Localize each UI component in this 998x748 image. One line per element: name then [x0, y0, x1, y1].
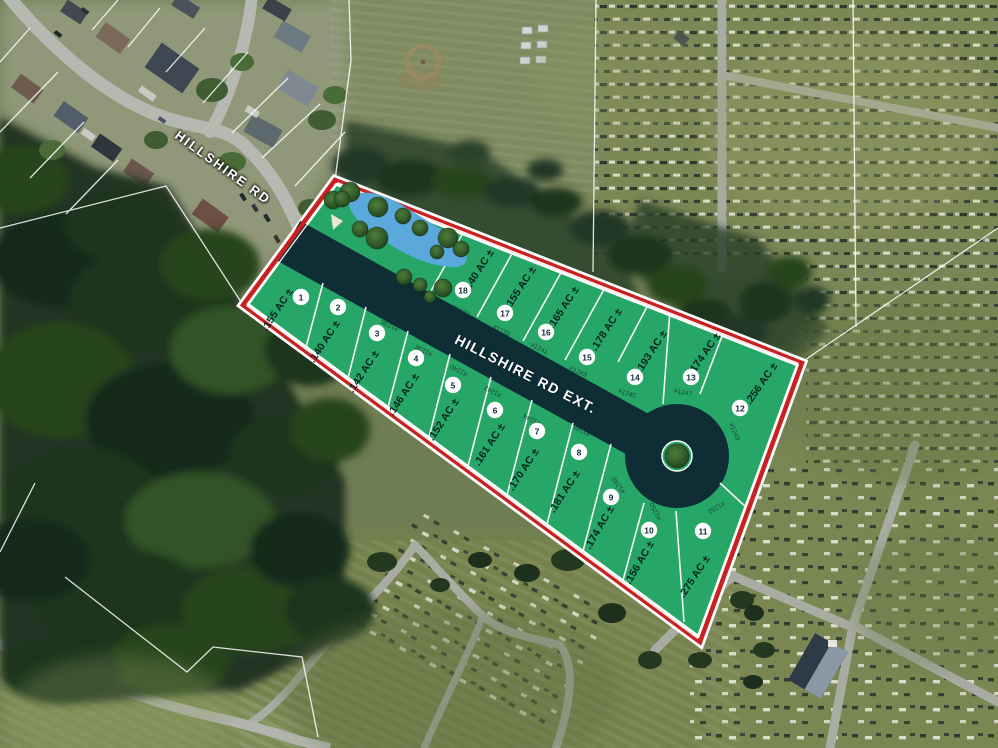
tree-icon — [665, 444, 689, 468]
lot-number: 12 — [735, 404, 745, 414]
lot-number: 10 — [644, 526, 654, 536]
tree-icon — [368, 197, 388, 217]
map-canvas: .155 AC ±#12321.140 AC ±#12342.142 AC ±#… — [0, 0, 998, 748]
tree-icon — [334, 191, 350, 207]
lot-number: 15 — [582, 353, 592, 363]
lot-number: 8 — [577, 448, 582, 458]
tree-icon — [413, 278, 427, 292]
tree-icon — [352, 221, 368, 237]
tree-icon — [453, 241, 469, 257]
tree-icon — [396, 269, 412, 285]
tree-icon — [434, 279, 452, 297]
dirt-ring-center — [421, 60, 426, 65]
lot-number: 13 — [686, 373, 696, 383]
lot-number: 4 — [414, 354, 419, 364]
aerial-plat-map: .155 AC ±#12321.140 AC ±#12342.142 AC ±#… — [0, 0, 998, 748]
lot-number: 9 — [609, 493, 614, 503]
lot-number: 16 — [541, 328, 551, 338]
lot-number: 18 — [458, 286, 468, 296]
lot-number: 7 — [535, 427, 540, 437]
tree-icon — [395, 208, 411, 224]
lot-number: 14 — [630, 373, 640, 383]
lot-number: 17 — [500, 309, 510, 319]
lot-number: 1 — [299, 293, 304, 303]
lot-number: 11 — [699, 527, 708, 537]
shed — [828, 640, 837, 647]
lot-number: 5 — [451, 381, 456, 391]
lot-number: 2 — [336, 303, 341, 313]
tree-icon — [430, 245, 444, 259]
tree-icon — [366, 227, 388, 249]
tree-icon — [424, 291, 436, 303]
tree-icon — [412, 220, 428, 236]
lot-number: 6 — [493, 406, 498, 416]
lot-number: 3 — [375, 329, 380, 339]
